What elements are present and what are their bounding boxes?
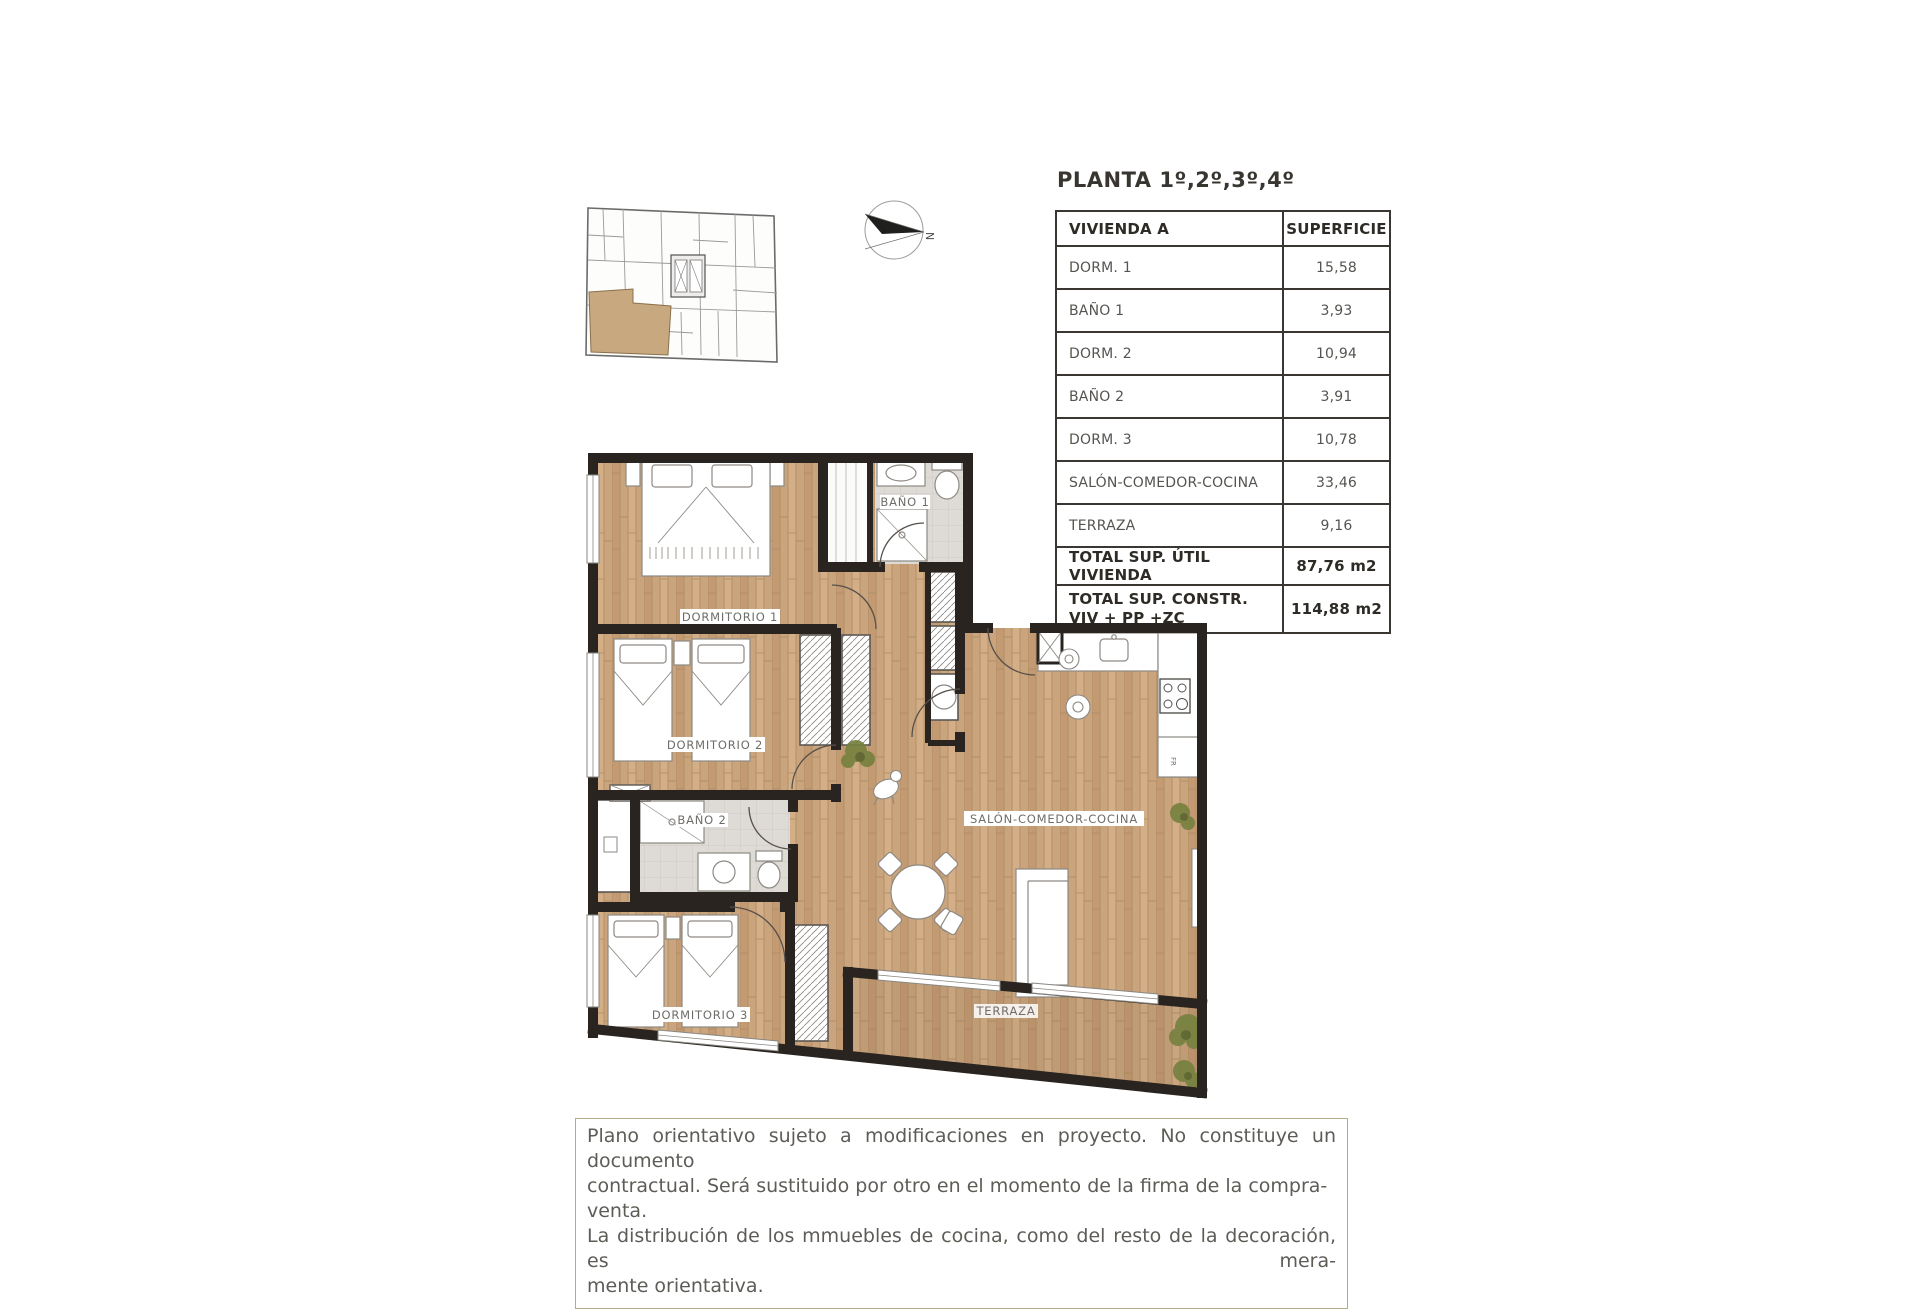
washing-machine (932, 685, 956, 709)
compass-north-label: N (923, 232, 936, 240)
header-vivienda: VIVIENDA A (1056, 211, 1283, 246)
building-core (671, 255, 705, 297)
stove (1160, 679, 1190, 713)
header-superficie: SUPERFICIE (1283, 211, 1390, 246)
toilet-tank (756, 851, 782, 861)
wardrobe (794, 925, 828, 1041)
total-useful-value: 87,76 m2 (1283, 547, 1390, 585)
label-terraza: TERRAZA (975, 1004, 1035, 1018)
room-surface: 10,94 (1283, 332, 1390, 375)
label-dorm2: DORMITORIO 2 (667, 738, 763, 752)
toilet-bowl (935, 471, 959, 499)
disclaimer-line: mente orientativa. (587, 1274, 1336, 1299)
room-label: BAÑO 1 (1056, 289, 1283, 332)
disclaimer-line: contractual. Será sustituido por otro en… (587, 1174, 1336, 1224)
apartment-floor-plan: FR (580, 445, 1240, 1105)
label-dorm3: DORMITORIO 3 (652, 1008, 748, 1022)
room-surface: 10,78 (1283, 418, 1390, 461)
room-label: BAÑO 2 (1056, 375, 1283, 418)
disclaimer-line: Plano orientativo sujeto a modificacione… (587, 1124, 1336, 1174)
table-row: BAÑO 1 3,93 (1056, 289, 1390, 332)
wardrobe (930, 626, 958, 670)
north-compass: N (858, 194, 942, 274)
building-overview-plan (583, 200, 783, 370)
table-row: DORM. 1 15,58 (1056, 246, 1390, 289)
room-surface: 15,58 (1283, 246, 1390, 289)
label-bano1: BAÑO 1 (880, 494, 929, 509)
label-dorm1: DORMITORIO 1 (682, 610, 778, 624)
sofa (1016, 869, 1068, 997)
table-row: BAÑO 2 3,91 (1056, 375, 1390, 418)
disclaimer-box: Plano orientativo sujeto a modificacione… (575, 1118, 1348, 1309)
kitchen-shaft (1038, 631, 1062, 663)
fridge-label: FR (1169, 757, 1177, 766)
wardrobe (800, 635, 832, 745)
label-salon: SALÓN-COMEDOR-COCINA (970, 811, 1138, 826)
closet-floor (826, 458, 867, 564)
room-surface: 3,91 (1283, 375, 1390, 418)
label-bano2: BAÑO 2 (677, 812, 726, 827)
dining-table (891, 865, 945, 919)
wardrobe (842, 635, 870, 745)
kitchen-sink (1100, 639, 1128, 661)
room-surface: 9,16 (1283, 504, 1390, 547)
fridge: FR (1158, 737, 1198, 777)
room-label: DORM. 2 (1056, 332, 1283, 375)
room-surface: 33,46 (1283, 461, 1390, 504)
total-built-value: 114,88 m2 (1283, 585, 1390, 633)
disclaimer-line: La distribución de los mmuebles de cocin… (587, 1224, 1336, 1274)
table-header-row: VIVIENDA A SUPERFICIE (1056, 211, 1390, 246)
wardrobe (930, 572, 958, 622)
room-surface: 3,93 (1283, 289, 1390, 332)
page-title: PLANTA 1º,2º,3º,4º (1057, 168, 1295, 192)
room-label: DORM. 1 (1056, 246, 1283, 289)
table-row: DORM. 2 10,94 (1056, 332, 1390, 375)
utility-appliance (604, 837, 617, 852)
toilet-bowl (758, 862, 780, 888)
